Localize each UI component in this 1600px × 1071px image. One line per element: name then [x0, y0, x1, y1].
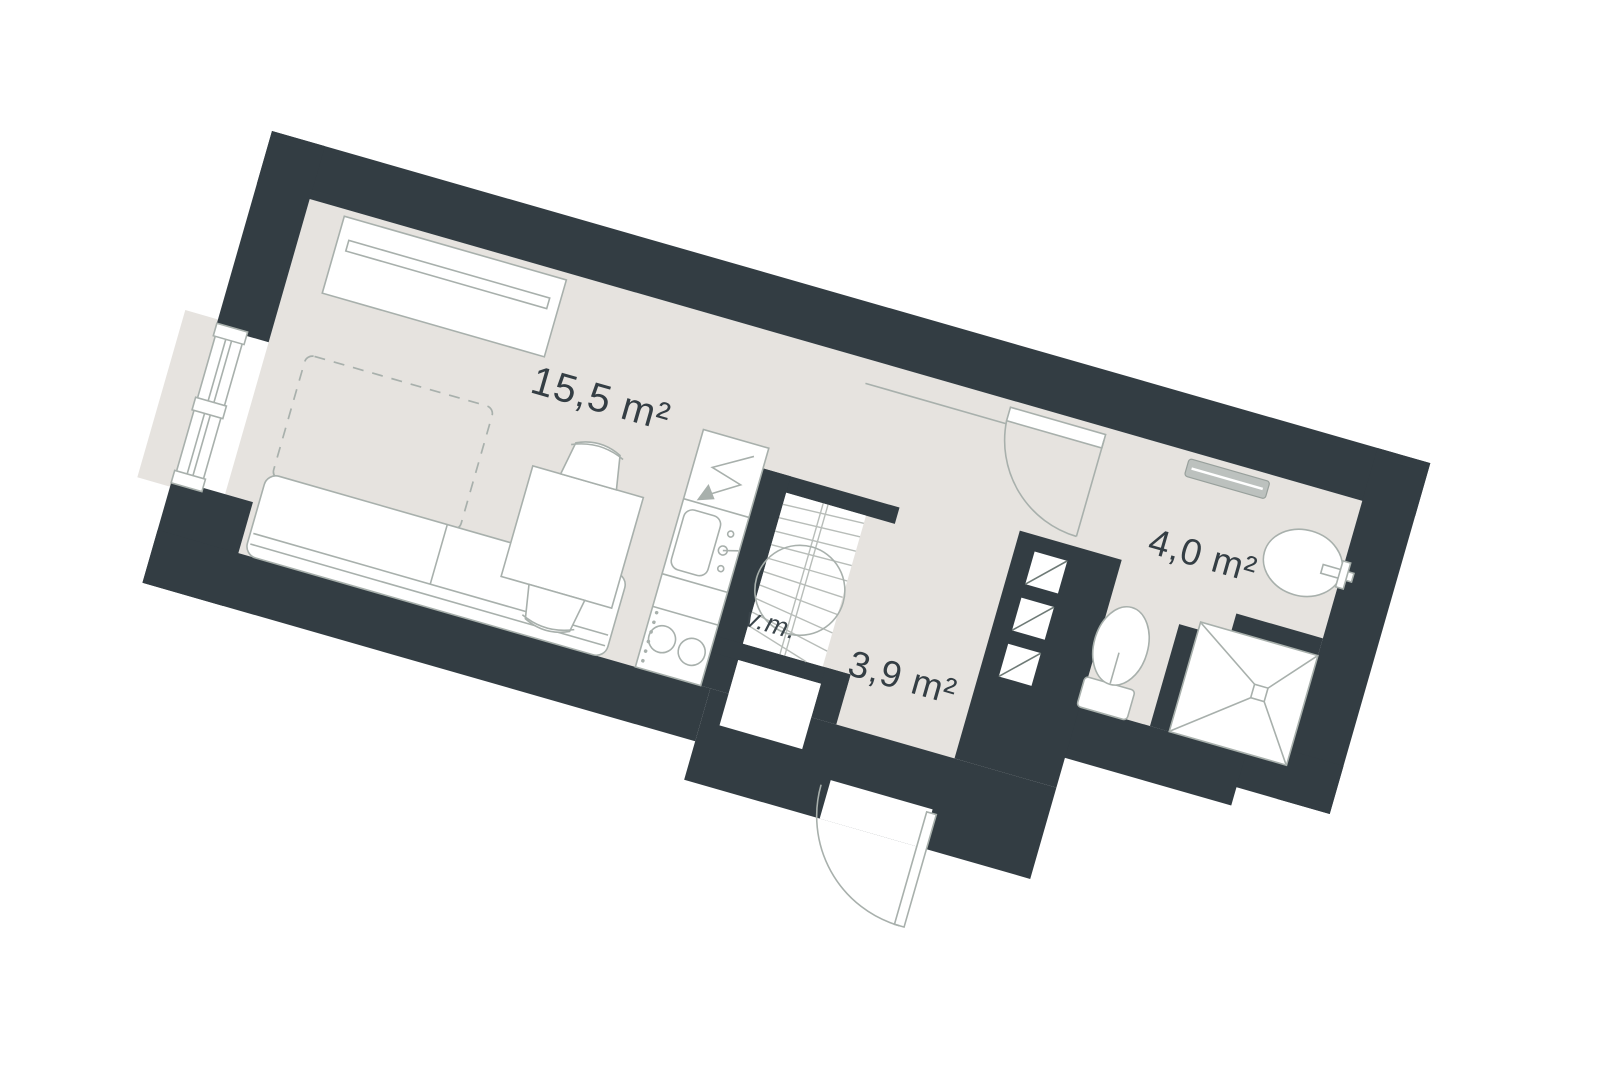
- shower-drain: [1251, 684, 1268, 701]
- floor-plan-canvas: v.m.: [0, 0, 1600, 1071]
- floor-plan-page: v.m.: [0, 0, 1600, 1071]
